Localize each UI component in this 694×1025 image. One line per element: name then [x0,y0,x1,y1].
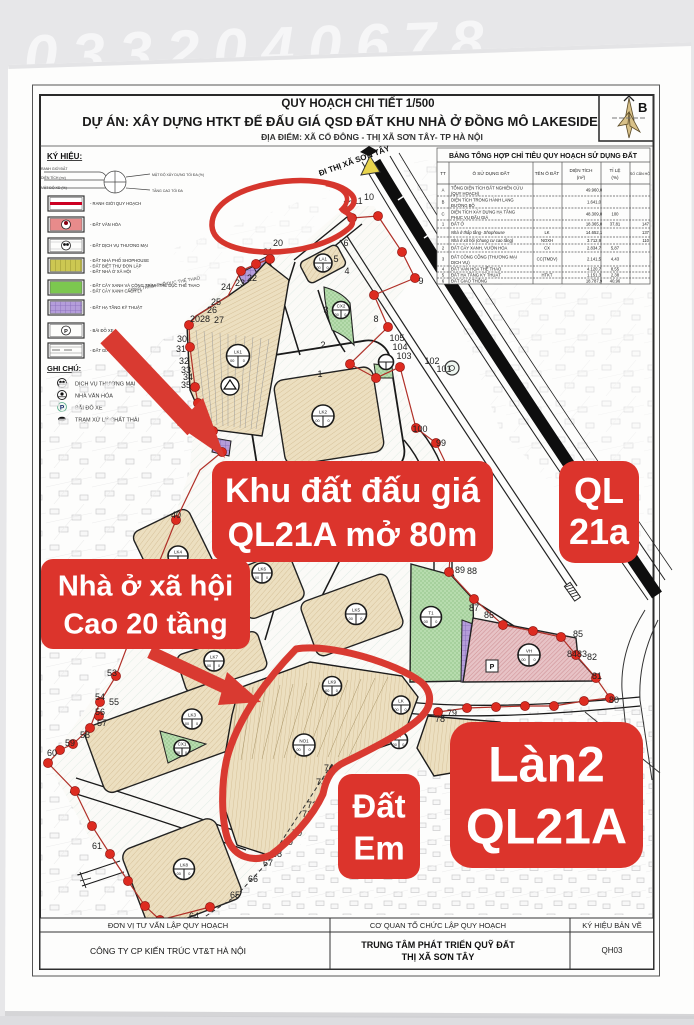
svg-text:ĐẤT CÔNG CỘNG (THƯƠNG MẠI: ĐẤT CÔNG CỘNG (THƯƠNG MẠI [451,255,517,260]
svg-text:89: 89 [455,565,465,575]
svg-text:81: 81 [592,671,602,681]
svg-text:82: 82 [587,652,597,662]
svg-text:LK5: LK5 [352,608,361,613]
svg-text:NO1: NO1 [299,739,309,744]
svg-text:0: 0 [243,359,245,363]
svg-text:B: B [442,200,445,205]
svg-text:00: 00 [255,576,259,580]
svg-text:LK8: LK8 [180,863,189,868]
svg-text:LA1: LA1 [319,257,328,262]
svg-text:30: 30 [177,334,187,344]
svg-text:QUY HOẠCH CHI TIẾT 1/500: QUY HOẠCH CHI TIẾT 1/500 [281,97,434,110]
svg-text:00: 00 [296,748,300,752]
svg-text:QL: QL [574,470,624,511]
svg-text:Làn2: Làn2 [488,736,605,792]
svg-text:ĐƯỜNG BỘ: ĐƯỜNG BỘ [451,203,475,208]
svg-text:9: 9 [418,276,423,286]
svg-text:- ĐẤT BIỆT THỰ ĐƠN LẬP: - ĐẤT BIỆT THỰ ĐƠN LẬP [90,264,142,269]
svg-text:B: B [638,100,647,115]
svg-text:PHỤC VỤ ĐẤU GIÁ: PHỤC VỤ ĐẤU GIÁ [451,215,488,220]
svg-text:23: 23 [235,278,245,288]
svg-text:Nhà ở xã hội (chung cư cao tần: Nhà ở xã hội (chung cư cao tầng) [451,238,514,243]
svg-text:Nhà ở thấp tầng- Shophouse: Nhà ở thấp tầng- Shophouse [451,230,505,235]
svg-text:53: 53 [107,668,117,678]
svg-text:0: 0 [404,708,406,712]
svg-text:0: 0 [266,576,268,580]
svg-text:TRUNG TÂM PHÁT TRIỂN QUỸ ĐẤT: TRUNG TÂM PHÁT TRIỂN QUỸ ĐẤT [361,939,515,950]
svg-text:103: 103 [396,351,411,361]
svg-text:VH: VH [526,649,532,654]
svg-text:LK6: LK6 [258,567,267,572]
svg-text:60: 60 [47,748,57,758]
svg-text:0: 0 [327,419,329,423]
svg-text:24: 24 [221,282,231,292]
svg-text:ĐƠN VỊ TƯ VẤN LẬP QUY HOẠCH: ĐƠN VỊ TƯ VẤN LẬP QUY HOẠCH [108,920,228,930]
svg-text:0: 0 [336,689,338,693]
svg-text:- ĐẤT NHÀ PHỐ SHOPHOUSE: - ĐẤT NHÀ PHỐ SHOPHOUSE [90,258,149,263]
svg-text:10: 10 [364,192,374,202]
svg-text:100: 100 [612,212,620,217]
svg-text:- BÃI ĐỖ XE: - BÃI ĐỖ XE [90,328,114,333]
svg-text:2028: 2028 [190,314,210,324]
svg-text:59: 59 [65,738,75,748]
svg-text:(%): (%) [611,175,619,180]
svg-text:Em: Em [353,829,404,866]
svg-text:QL21A: QL21A [466,798,627,854]
svg-text:2: 2 [320,340,325,350]
svg-text:0: 0 [360,617,362,621]
svg-text:86: 86 [484,610,494,620]
svg-text:QL21A mở 80m: QL21A mở 80m [228,516,478,554]
svg-text:4: 4 [344,266,349,276]
svg-text:A: A [442,188,445,193]
svg-text:Khu đất đấu giá: Khu đất đấu giá [225,472,480,510]
svg-text:C: C [441,212,444,217]
svg-text:ĐẤT CÂY XANH, VƯỜN HOA: ĐẤT CÂY XANH, VƯỜN HOA [451,246,508,251]
svg-text:87: 87 [469,603,479,613]
svg-text:MẬT ĐỘ XÂY DỰNG TỐI ĐA (%): MẬT ĐỘ XÂY DỰNG TỐI ĐA (%) [152,172,204,177]
svg-text:66: 66 [248,874,258,884]
svg-text:0: 0 [435,620,437,624]
svg-text:00: 00 [177,872,181,876]
svg-text:Cao 20 tầng: Cao 20 tầng [63,609,227,641]
svg-text:110: 110 [642,238,649,243]
svg-text:1: 1 [317,369,322,379]
svg-text:49.960,0: 49.960,0 [586,188,603,193]
svg-text:CƠ QUAN TỔ CHỨC LẬP QUY HOẠCH: CƠ QUAN TỔ CHỨC LẬP QUY HOẠCH [370,921,506,930]
svg-text:0: 0 [188,872,190,876]
svg-text:40: 40 [171,510,181,520]
svg-text:TÊN Ô ĐẤT: TÊN Ô ĐẤT [535,169,560,176]
svg-text:55: 55 [109,697,119,707]
svg-text:54: 54 [95,692,105,702]
svg-text:27: 27 [214,315,224,325]
svg-text:00: 00 [185,722,189,726]
svg-text:31: 31 [176,344,186,354]
svg-text:0: 0 [344,313,346,317]
svg-text:TỔNG DIỆN TÍCH ĐẤT NGHIÊN CỨU: TỔNG DIỆN TÍCH ĐẤT NGHIÊN CỨU [451,186,523,191]
svg-text:85: 85 [573,629,583,639]
svg-text:40,96: 40,96 [610,279,621,284]
svg-text:20: 20 [273,238,283,248]
svg-text:58: 58 [80,730,90,740]
svg-text:4,43: 4,43 [611,257,620,262]
svg-text:00: 00 [424,620,428,624]
svg-text:56: 56 [95,707,105,717]
svg-text:LK7: LK7 [210,655,219,660]
svg-text:5,87: 5,87 [611,246,620,251]
svg-text:ĐẤT GIAO THÔNG: ĐẤT GIAO THÔNG [451,279,487,284]
svg-text:DIỆN TÍCH: DIỆN TÍCH [570,166,593,173]
svg-text:2.141,5: 2.141,5 [587,257,602,262]
svg-text:CX2: CX2 [337,304,346,309]
svg-text:TỈ LỆ: TỈ LỆ [610,166,621,173]
svg-text:78: 78 [435,714,445,724]
svg-text:Đất: Đất [352,787,405,824]
svg-text:- ĐẤT HẠ TẦNG KỸ THUẬT: - ĐẤT HẠ TẦNG KỸ THUẬT [90,305,143,310]
svg-text:35: 35 [181,380,191,390]
svg-text:- ĐẤT NHÀ Ở XÃ HỘI: - ĐẤT NHÀ Ở XÃ HỘI [90,269,131,274]
svg-text:T1: T1 [428,611,434,616]
svg-text:MẬT ĐỘ XD (%): MẬT ĐỘ XD (%) [41,185,67,190]
svg-text:00: 00 [316,266,320,270]
svg-text:LK2: LK2 [319,410,328,415]
svg-text:8483: 8483 [567,649,587,659]
svg-text:0: 0 [196,722,198,726]
svg-text:DỊCH VỤ): DỊCH VỤ) [451,260,470,265]
svg-text:3: 3 [323,305,328,315]
svg-text:00: 00 [315,419,319,423]
svg-text:6: 6 [343,238,348,248]
svg-text:2,38: 2,38 [611,273,620,278]
svg-text:ĐẤT Ở: ĐẤT Ở [451,222,464,227]
svg-text:101: 101 [436,364,451,374]
svg-text:HTKT: HTKT [542,273,553,278]
svg-text:1.151,3: 1.151,3 [587,273,602,278]
svg-text:65: 65 [230,890,240,900]
svg-text:0: 0 [185,751,187,755]
svg-text:80: 80 [609,695,619,705]
svg-text:LK1: LK1 [234,350,243,355]
svg-text:00: 00 [230,359,234,363]
svg-text:79: 79 [447,708,457,718]
svg-text:0: 0 [218,664,220,668]
svg-text:48.309,0: 48.309,0 [586,212,603,217]
svg-text:21a: 21a [569,511,630,552]
svg-text:- RANH GIỚI QUY HOẠCH: - RANH GIỚI QUY HOẠCH [90,201,141,206]
svg-text:LK9: LK9 [328,680,337,685]
svg-text:00: 00 [207,664,211,668]
svg-text:37,81: 37,81 [610,222,621,227]
svg-text:22: 22 [247,273,257,283]
svg-text:00: 00 [349,617,353,621]
svg-text:NOXH: NOXH [541,238,553,243]
svg-text:0: 0 [533,658,535,662]
svg-text:100: 100 [412,424,427,434]
svg-text:18.365,0: 18.365,0 [586,222,603,227]
svg-text:CC(TMDV): CC(TMDV) [537,257,558,262]
svg-text:00: 00 [176,751,180,755]
svg-text:- ĐẤT DỊCH VỤ THƯƠNG MẠI: - ĐẤT DỊCH VỤ THƯƠNG MẠI [90,243,148,248]
svg-text:14.652,1: 14.652,1 [586,230,603,235]
svg-text:LK4: LK4 [174,550,183,555]
svg-text:147: 147 [642,222,650,227]
svg-text:4.120,7: 4.120,7 [587,267,602,272]
svg-text:Nhà ở xã hội: Nhà ở xã hội [58,571,233,603]
svg-text:Ô SỬ DỤNG ĐẤT: Ô SỬ DỤNG ĐẤT [472,170,509,176]
svg-text:KÝ HIỆU BẢN VẼ: KÝ HIỆU BẢN VẼ [582,921,642,930]
svg-text:1.641,0: 1.641,0 [587,200,602,205]
svg-text:KÝ HIỆU:: KÝ HIỆU: [47,152,82,161]
svg-text:5: 5 [333,254,338,264]
svg-text:LK: LK [398,699,404,704]
svg-text:(QUY HOẠCH): (QUY HOẠCH) [451,191,480,196]
svg-text:DIỆN TÍCH (m²): DIỆN TÍCH (m²) [41,175,66,180]
svg-text:LK3: LK3 [188,713,197,718]
svg-text:99: 99 [436,438,446,448]
svg-text:61: 61 [92,841,102,851]
svg-text:18.787,9: 18.787,9 [586,279,603,284]
svg-text:SỐ CĂN HỘ: SỐ CĂN HỘ [630,171,650,176]
svg-text:P: P [490,664,495,671]
svg-text:0: 0 [402,743,404,747]
svg-text:0: 0 [308,748,310,752]
svg-text:88: 88 [467,566,477,576]
svg-text:3.712,9: 3.712,9 [587,238,602,243]
svg-text:CX1: CX1 [178,742,187,747]
svg-text:ĐỊA ĐIỂM: XÃ CỔ ĐÔNG - THỊ XÃ: ĐỊA ĐIỂM: XÃ CỔ ĐÔNG - THỊ XÃ SƠN TÂY- T… [261,131,483,142]
svg-text:RANH GIỚI ĐẤT: RANH GIỚI ĐẤT [41,166,68,171]
svg-text:(m²): (m²) [577,175,586,180]
svg-text:8,55: 8,55 [611,267,620,272]
svg-text:0: 0 [326,266,328,270]
svg-text:00: 00 [335,313,339,317]
svg-text:00: 00 [325,689,329,693]
svg-text:ĐẤT HẠ TẦNG KỸ THUẬT: ĐẤT HẠ TẦNG KỸ THUẬT [451,273,501,278]
svg-text:TẦNG CAO TỐI ĐA: TẦNG CAO TỐI ĐA [152,188,184,193]
svg-text:ĐẤT VĂN HÓA THỂ THAO: ĐẤT VĂN HÓA THỂ THAO [451,267,502,272]
svg-text:137: 137 [642,230,650,235]
svg-text:P: P [64,329,68,335]
svg-text:CÔNG TY CP KIẾN TRÚC VT&T HÀ N: CÔNG TY CP KIẾN TRÚC VT&T HÀ NỘI [90,946,246,956]
svg-text:2.834,7: 2.834,7 [587,246,602,251]
svg-text:00: 00 [394,708,398,712]
svg-text:- ĐẤT VĂN HÓA: - ĐẤT VĂN HÓA [90,222,121,227]
svg-text:THỊ XÃ SƠN TÂY: THỊ XÃ SƠN TÂY [402,951,475,962]
svg-text:57: 57 [97,718,107,728]
svg-text:TT: TT [440,171,446,176]
svg-text:CX: CX [544,246,550,251]
svg-text:DỰ ÁN: XÂY DỰNG HTKT ĐỂ ĐẤU GI: DỰ ÁN: XÂY DỰNG HTKT ĐỂ ĐẤU GIÁ QSD ĐẤT … [82,114,598,129]
svg-text:00: 00 [393,743,397,747]
svg-text:DIỆN TÍCH TRONG HÀNH LANG: DIỆN TÍCH TRONG HÀNH LANG [451,198,514,203]
svg-text:00: 00 [521,658,525,662]
svg-text:QH03: QH03 [602,946,623,955]
svg-text:DIỆN TÍCH XÂY DỰNG HẠ TẦNG: DIỆN TÍCH XÂY DỰNG HẠ TẦNG [451,210,515,215]
svg-text:8: 8 [373,314,378,324]
svg-text:LK: LK [544,230,549,235]
